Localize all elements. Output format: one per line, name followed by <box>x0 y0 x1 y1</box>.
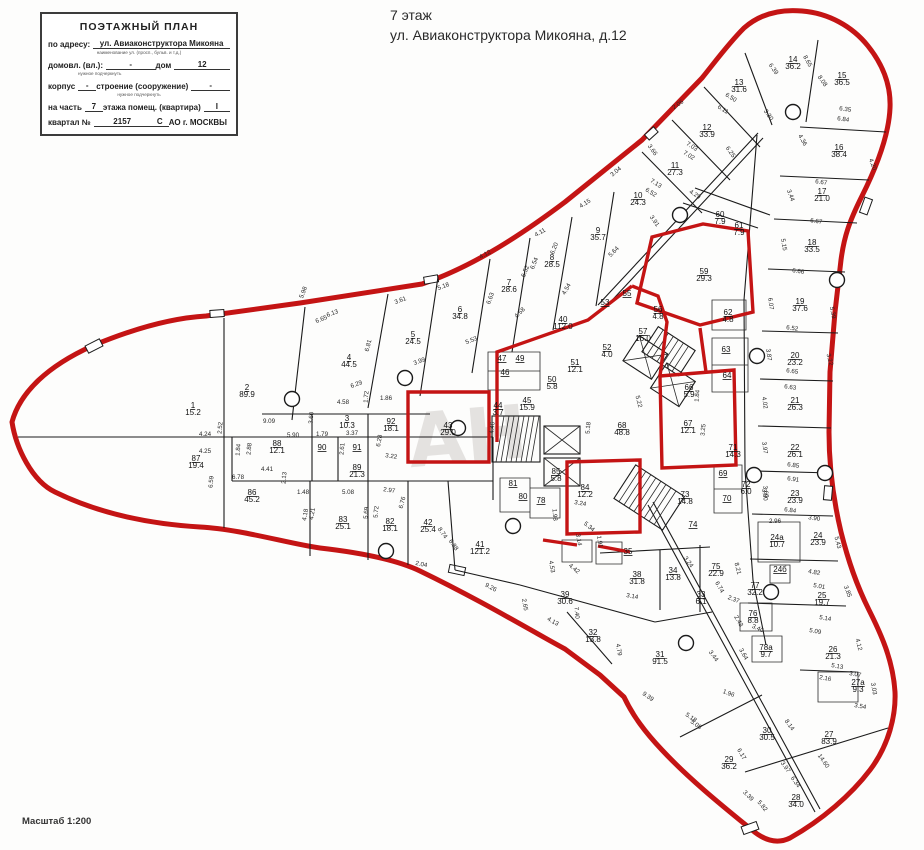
dimension-label: 6.34 <box>789 775 802 789</box>
dimension-label: 6.28 <box>375 434 384 448</box>
dimension-label: 6.84 <box>837 115 850 124</box>
room-label: 90 <box>318 443 327 452</box>
dimension-label: 2.97 <box>383 486 396 495</box>
room-label: 1833.5 <box>804 238 820 254</box>
dimension-labels: 4.244.252.529.095.901.793.372.611.842.88… <box>199 54 878 813</box>
dimension-label: 1.86 <box>380 395 393 402</box>
quarter-label: квартал № <box>48 118 91 127</box>
dimension-label: 2.37 <box>727 594 741 605</box>
dimension-label: 6.39 <box>767 62 780 76</box>
floor-part-label: на часть <box>48 103 82 112</box>
dimension-label: 6.85 <box>787 461 800 470</box>
room-label: 8412.2 <box>577 483 593 499</box>
city-district-label: АО г. МОСКВЫ <box>169 118 227 127</box>
premise-value: I <box>204 102 230 112</box>
dimension-label: 6.65 <box>786 367 799 376</box>
house-possession-value: - <box>106 60 155 70</box>
room-label: 3930.6 <box>557 590 573 606</box>
dimension-label: 6.13 <box>326 308 340 319</box>
dimension-label: 5.09 <box>809 627 823 636</box>
dimension-label: 4.13 <box>546 616 560 628</box>
dimension-label: 3.87 <box>764 348 773 361</box>
dimension-label: 5.98 <box>298 285 309 299</box>
dimension-label: 6.76 <box>398 495 408 509</box>
dimension-label: 4.21 <box>308 507 317 521</box>
room-label: 64 <box>723 371 732 380</box>
room-label: 1233.9 <box>699 123 715 139</box>
dimension-label: 6.74 <box>713 580 725 594</box>
dimension-label: 6.67 <box>810 217 823 226</box>
dimension-label: 5.72 <box>372 505 380 518</box>
room-label: 728.6 <box>501 278 517 294</box>
dimension-label: 4.53 <box>547 560 556 574</box>
room-label: 444.5 <box>341 353 357 369</box>
dimension-label: 5.18 <box>584 421 592 434</box>
room-label: 3030.5 <box>759 726 775 742</box>
dimension-label: 2.52 <box>216 421 224 434</box>
room-label: 80 <box>519 492 528 501</box>
dimension-label: 5.13 <box>831 662 845 671</box>
room-label: 4225.4 <box>420 518 436 534</box>
dimension-label: 3.44 <box>707 649 720 663</box>
room-label: 2936.2 <box>721 755 737 771</box>
dimension-label: 6.84 <box>784 506 797 515</box>
room-label: 2621.3 <box>825 645 841 661</box>
dimension-label: 14.60 <box>816 753 831 770</box>
dimension-label: 5.69 <box>362 506 370 519</box>
dimension-label: 4.54 <box>561 282 573 296</box>
room-label: 3831.8 <box>629 570 645 586</box>
room-label: 7314.8 <box>677 490 693 506</box>
dimension-label: 4.82 <box>808 568 822 577</box>
room-label: 2519.7 <box>814 591 830 607</box>
room-label: 1536.5 <box>834 71 850 87</box>
room-label: 2423.9 <box>810 531 826 547</box>
house-possession-label: домовл. (вл.): <box>48 61 103 70</box>
room-label: 5716.0 <box>635 327 651 343</box>
dimension-label: 3.37 <box>346 430 359 437</box>
dimension-label: 3.44 <box>785 189 796 203</box>
room-label: 8719.4 <box>188 454 204 470</box>
dimension-label: 5.14 <box>819 614 833 623</box>
dimension-label: 3.25 <box>699 423 707 436</box>
dimension-label: 4.02 <box>760 396 769 409</box>
title-block-stamp: ПОЭТАЖНЫЙ ПЛАН по адресу: ул. Авиаконстр… <box>40 12 238 136</box>
room-label: 624.8 <box>722 308 734 324</box>
dimension-label: 4.46 <box>488 421 496 434</box>
room-label: 8812.1 <box>269 439 285 455</box>
dimension-label: 3.24 <box>682 555 695 569</box>
column-circles <box>285 105 845 651</box>
dimension-label: 3.14 <box>626 592 640 601</box>
room-label: 47 <box>498 354 507 363</box>
dimension-label: 6.52 <box>644 187 658 200</box>
dimension-label: 3.60 <box>307 411 315 424</box>
dimension-label: 6.67 <box>815 178 828 187</box>
room-label: 7114.3 <box>725 443 741 459</box>
dimension-label: 5.08 <box>342 489 355 496</box>
room-label: 8921.3 <box>349 463 365 479</box>
dimension-label: 7.40 <box>572 607 580 620</box>
dimension-label: 5.18 <box>437 281 451 292</box>
room-label: 2323.9 <box>787 489 803 505</box>
room-label: 726.0 <box>740 480 752 496</box>
dimension-label: 3.97 <box>760 441 769 454</box>
dimension-label: 6.54 <box>529 256 540 270</box>
dimension-label: 5.08 <box>689 718 703 731</box>
room-label: 336.1 <box>695 590 707 606</box>
dimension-label: 5.90 <box>287 432 300 439</box>
room-label: 505.8 <box>546 375 558 391</box>
dimension-label: 4.29 <box>688 189 702 202</box>
structure-value: - <box>191 81 230 91</box>
room-label: 2023.2 <box>787 351 803 367</box>
dimension-label: 3.22 <box>385 452 398 461</box>
room-label: 564.8 <box>652 305 664 321</box>
dimension-label: 3.90 <box>808 514 821 523</box>
dimension-label: 6.63 <box>784 383 797 392</box>
highlight-corridor-right <box>700 328 706 372</box>
dimension-label: 6.88 <box>447 538 460 552</box>
dimension-label: 5.01 <box>813 582 827 591</box>
room-label: 91 <box>353 443 362 452</box>
dimension-label: 6.17 <box>735 747 747 761</box>
dimension-label: 2.43 <box>732 614 744 628</box>
elevator-shafts-left <box>544 426 580 486</box>
room-label: 1331.6 <box>731 78 747 94</box>
dimension-label: 2.13 <box>280 471 288 484</box>
room-label: 6712.1 <box>680 419 696 435</box>
room-label: 7522.9 <box>708 562 724 578</box>
dimension-label: 1.98 <box>550 509 558 522</box>
floor-plan-page: { "header": {"line1": "7 этаж", "line2":… <box>0 0 924 850</box>
dimension-label: 1.48 <box>297 489 310 496</box>
dimension-label: 8.21 <box>733 562 743 576</box>
room-label: 2834.0 <box>788 793 804 809</box>
dimension-label: 6.29 <box>350 379 364 390</box>
quarter-number-value: 2157 <box>94 117 151 127</box>
dimension-label: 4.36 <box>796 133 808 147</box>
room-label: 53 <box>601 298 610 307</box>
structure-label: строение (сооружение) <box>96 82 188 91</box>
house-label: дом <box>156 61 172 70</box>
room-label: 524.5 <box>405 330 421 346</box>
room-label: 24б <box>773 565 787 574</box>
room-label: 5112.1 <box>567 358 583 374</box>
dimension-label: 5.22 <box>634 395 644 409</box>
dimension-label: 6.59 <box>207 475 215 488</box>
room-label: 8325.1 <box>335 515 351 531</box>
room-label: 78 <box>537 496 546 505</box>
dimension-label: 3.30 <box>762 108 775 122</box>
dimension-label: 2.61 <box>338 442 346 455</box>
underline-note-2: нужное подчеркнуть <box>48 92 230 97</box>
address-value: ул. Авиаконструктора Микояна <box>93 39 230 49</box>
room-label: 2226.1 <box>787 443 803 459</box>
dimension-label: 6.66 <box>792 267 805 276</box>
room-label: 2783.9 <box>821 730 837 746</box>
dimension-label: 1.96 <box>722 688 736 699</box>
stairwell-bottom-right <box>614 465 684 530</box>
room-label: 81 <box>509 479 518 488</box>
dimension-label: 2.96 <box>769 518 782 525</box>
dimension-label: 8.08 <box>816 74 829 88</box>
room-label: 828.5 <box>544 253 560 269</box>
address-label: по адресу: <box>48 40 90 49</box>
room-label: 8218.1 <box>382 517 398 533</box>
room-label: 27а9.3 <box>851 678 865 694</box>
dimension-label: 5.39 <box>828 306 837 320</box>
room-label: 70 <box>723 494 732 503</box>
room-label: 634.8 <box>452 305 468 321</box>
page-title: 7 этаж ул. Авиаконструктора Микояна, д.1… <box>390 6 627 45</box>
dimension-label: 3.39 <box>741 789 755 803</box>
room-label: 74 <box>689 520 698 529</box>
room-label: 78а9.7 <box>759 643 773 659</box>
room-label: 5929.3 <box>696 267 712 283</box>
dimension-label: 8.74 <box>436 526 449 540</box>
room-label: 46 <box>501 368 510 377</box>
room-label: 935.7 <box>590 226 606 242</box>
room-label: 40112.0 <box>553 315 573 331</box>
dimension-label: 3.97 <box>779 760 792 774</box>
dimension-label: 3.54 <box>854 702 868 711</box>
dimension-label: 3.66 <box>646 143 659 157</box>
dimension-label: 5.64 <box>607 245 621 259</box>
dimension-label: 6.11 <box>716 104 730 116</box>
room-label: 3191.5 <box>652 650 668 666</box>
house-number-value: 12 <box>174 60 230 70</box>
room-label: 35 <box>624 547 633 556</box>
room-label: 41121.2 <box>470 540 491 556</box>
dimension-label: 6.20 <box>549 241 560 255</box>
room-label: 115.2 <box>185 401 201 417</box>
room-label: 1024.3 <box>630 191 646 207</box>
room-label: 63 <box>722 345 731 354</box>
stamp-heading: ПОЭТАЖНЫЙ ПЛАН <box>48 21 230 33</box>
dimension-label: 6.35 <box>839 105 852 114</box>
room-label: 524.0 <box>601 343 613 359</box>
room-label: 310.3 <box>339 414 355 430</box>
room-label: 855.8 <box>550 467 562 483</box>
dimension-label: 4.42 <box>567 562 581 575</box>
building-value: - <box>78 81 96 91</box>
floor-number-value: 7 <box>85 102 103 112</box>
dimension-label: 6.07 <box>766 297 775 310</box>
dimension-label: 5.82 <box>756 799 769 813</box>
dimension-label: 3.61 <box>394 295 408 306</box>
dimension-label: 3.91 <box>648 214 661 228</box>
room-label: 443.7 <box>492 401 504 417</box>
dimension-label: 4.41 <box>261 466 274 473</box>
dimension-label: 4.15 <box>578 197 592 210</box>
dimension-label: 1.72 <box>362 390 370 403</box>
dimension-label: 9.09 <box>263 418 276 425</box>
dimension-label: 4.24 <box>199 431 212 438</box>
floor-title: 7 этаж <box>390 6 627 26</box>
dimension-label: 8.14 <box>783 718 796 732</box>
room-label: 8645.2 <box>244 488 260 504</box>
dimension-label: 6.91 <box>787 475 800 484</box>
dimension-label: 3.03 <box>869 682 878 696</box>
dimension-label: 6.78 <box>232 474 245 481</box>
dimension-label: 3.24 <box>574 499 588 508</box>
building-label: корпус <box>48 82 75 91</box>
room-label: 24а10.7 <box>769 533 785 549</box>
room-label: 2126.3 <box>787 396 803 412</box>
dimension-label: 8.65 <box>801 54 813 68</box>
room-label: 3413.8 <box>665 566 681 582</box>
dimension-label: 6.81 <box>364 338 374 352</box>
dimension-label: 3.80 <box>760 488 769 501</box>
room-label: 1127.3 <box>667 161 683 177</box>
room-label: 55 <box>623 289 632 298</box>
dimension-label: 1.79 <box>316 431 329 438</box>
address-title: ул. Авиаконструктора Микояна, д.12 <box>390 26 627 46</box>
dimension-label: 9.26 <box>484 582 498 594</box>
room-label: 69 <box>719 469 728 478</box>
dimension-label: 6.63 <box>485 291 496 305</box>
dimension-label: 9.39 <box>641 690 655 703</box>
address-note: наименование ул. (просп., бульв. и т.д.) <box>48 50 230 55</box>
dimension-label: 2.88 <box>245 442 253 455</box>
dimension-label: 4.58 <box>337 399 350 406</box>
dimension-label: 4.58 <box>513 306 527 320</box>
dimension-label: 3.85 <box>842 585 853 599</box>
room-label: 9218.1 <box>383 417 399 433</box>
district-letter-value: С <box>151 117 169 127</box>
room-label: 1638.4 <box>831 143 847 159</box>
room-label: 1937.6 <box>792 297 808 313</box>
room-label: 49 <box>516 354 525 363</box>
room-label: 7732.2 <box>747 581 763 597</box>
room-label: 6848.8 <box>614 421 630 437</box>
dimension-label: 1.84 <box>234 443 242 456</box>
room-label: 617.9 <box>733 221 745 237</box>
room-label: 607.9 <box>714 210 726 226</box>
underline-note-1: нужное подчеркнуть <box>78 71 230 76</box>
dimension-label: 2.16 <box>819 674 833 683</box>
dimension-label: 4.25 <box>199 448 212 455</box>
room-label: 1436.2 <box>785 55 801 71</box>
dimension-label: 4.11 <box>533 226 547 238</box>
dimension-label: 4.12 <box>854 638 864 652</box>
dimension-label: 4.79 <box>614 643 623 657</box>
scale-note: Масштаб 1:200 <box>22 816 91 827</box>
room-label: 1721.0 <box>814 187 830 203</box>
room-label: 4515.9 <box>519 396 535 412</box>
room-label: 3213.8 <box>585 628 601 644</box>
dimension-label: 1.84 <box>693 389 701 402</box>
room-label: 289.9 <box>239 383 255 399</box>
premise-label: этажа помещ. (квартира) <box>103 103 201 112</box>
dimension-label: 2.65 <box>520 598 529 612</box>
dimension-label: 3.40 <box>751 623 765 635</box>
dimension-label: 5.15 <box>779 238 788 252</box>
